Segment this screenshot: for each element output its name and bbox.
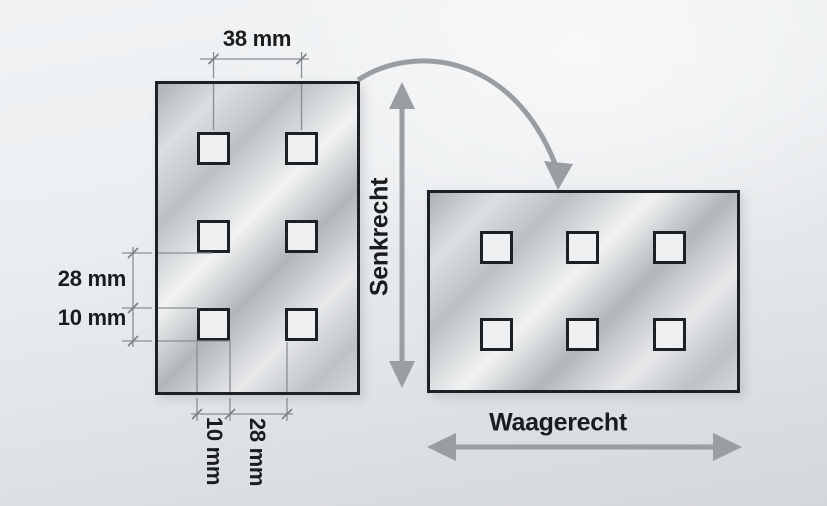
bottom-hole-dimension-label: 10 mm [201,417,227,485]
square-hole [197,220,230,253]
square-hole [197,308,230,341]
bottom-gap-dimension-label: 28 mm [244,418,270,486]
square-hole [566,231,599,264]
square-hole [480,231,513,264]
orientation-diagram: 38 mm 28 mm 10 mm 10 mm 28 mm Senkrecht … [0,0,827,506]
rotation-arrow-icon [358,61,573,190]
horizontal-plate [427,190,740,393]
horizontal-orientation-label: Waagerecht [489,409,627,438]
square-hole [653,231,686,264]
left-gap-dimension-label: 28 mm [40,266,126,292]
square-hole [197,132,230,165]
vertical-plate [155,81,360,395]
square-hole [285,220,318,253]
square-hole [285,132,318,165]
square-hole [285,308,318,341]
top-dimension-label: 38 mm [187,26,327,52]
square-hole [653,318,686,351]
square-hole [480,318,513,351]
vertical-orientation-label: Senkrecht [366,178,395,296]
square-hole [566,318,599,351]
left-hole-dimension-label: 10 mm [40,305,126,331]
